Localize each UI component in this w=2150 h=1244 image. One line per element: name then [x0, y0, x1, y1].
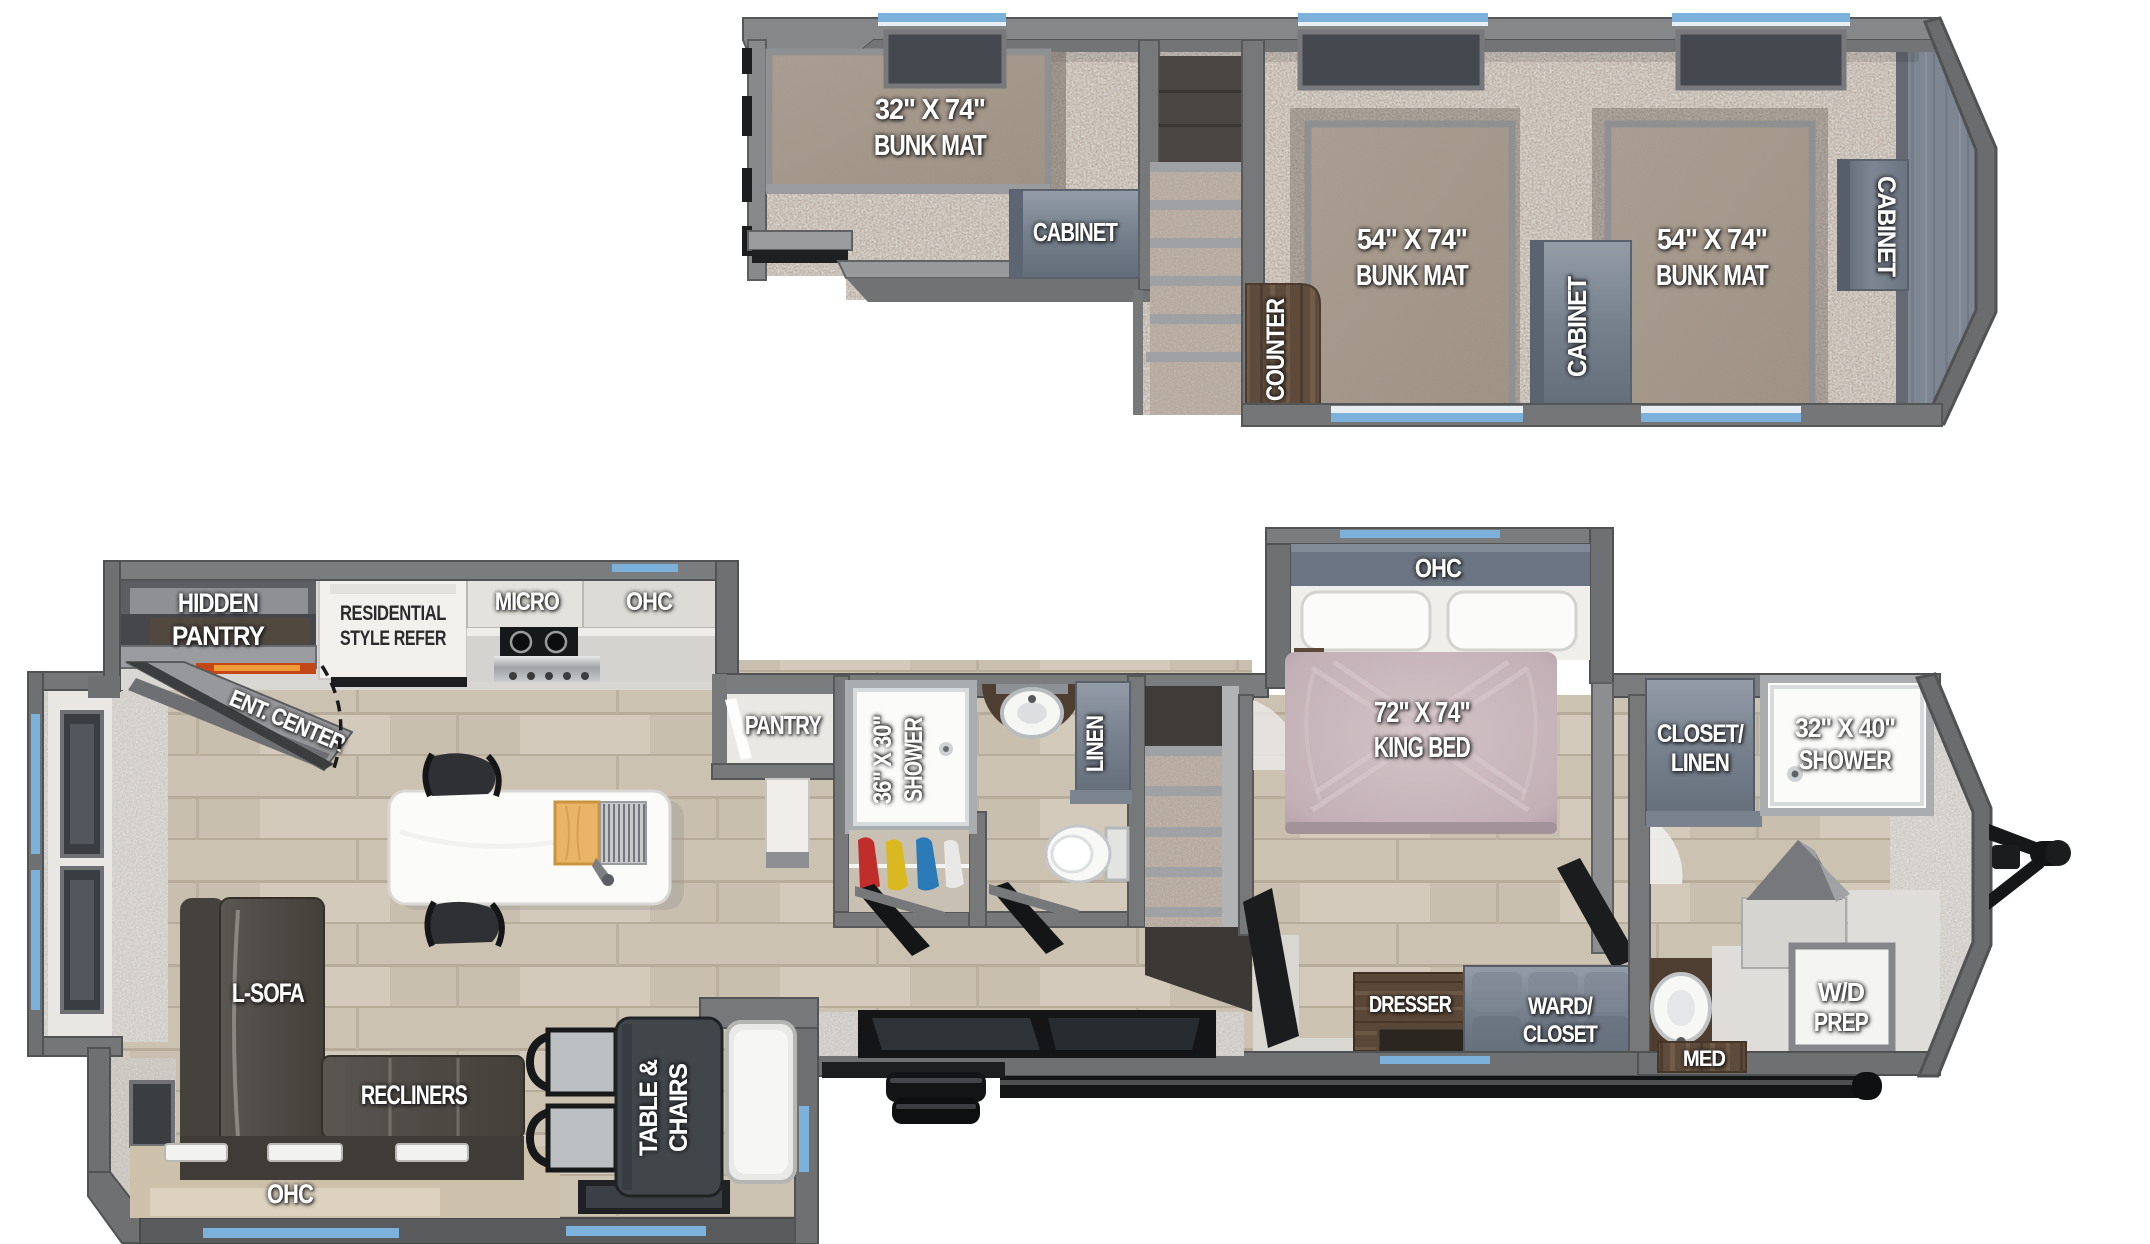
svg-text:HIDDEN: HIDDEN: [178, 588, 258, 618]
svg-text:36" X 30": 36" X 30": [869, 716, 897, 804]
svg-text:CHAIRS: CHAIRS: [665, 1064, 693, 1152]
svg-text:CABINET: CABINET: [1562, 276, 1592, 377]
svg-text:W/D: W/D: [1818, 977, 1864, 1007]
svg-text:CLOSET: CLOSET: [1523, 1021, 1598, 1048]
svg-text:OHC: OHC: [267, 1179, 313, 1209]
svg-text:BUNK MAT: BUNK MAT: [1656, 260, 1769, 292]
svg-text:CLOSET/: CLOSET/: [1657, 720, 1744, 748]
svg-text:OHC: OHC: [626, 588, 673, 616]
svg-text:CABINET: CABINET: [1872, 176, 1900, 277]
svg-text:TABLE &: TABLE &: [635, 1059, 663, 1156]
svg-text:BUNK MAT: BUNK MAT: [874, 130, 987, 162]
svg-text:54" X 74": 54" X 74": [1357, 224, 1467, 256]
svg-text:DRESSER: DRESSER: [1369, 991, 1452, 1017]
svg-text:COUNTER: COUNTER: [1262, 298, 1290, 401]
svg-text:KING BED: KING BED: [1374, 732, 1470, 764]
svg-text:BUNK MAT: BUNK MAT: [1356, 260, 1469, 292]
svg-text:MICRO: MICRO: [495, 588, 559, 616]
svg-text:RESIDENTIAL: RESIDENTIAL: [340, 602, 447, 625]
svg-text:PREP: PREP: [1814, 1007, 1869, 1037]
svg-text:LINEN: LINEN: [1671, 749, 1729, 777]
svg-text:54" X 74": 54" X 74": [1657, 224, 1767, 256]
svg-text:RECLINERS: RECLINERS: [361, 1080, 467, 1110]
svg-text:PANTRY: PANTRY: [745, 710, 822, 740]
svg-text:WARD/: WARD/: [1528, 993, 1593, 1020]
svg-text:PANTRY: PANTRY: [172, 621, 265, 651]
svg-text:SHOWER: SHOWER: [1799, 745, 1891, 775]
svg-text:CABINET: CABINET: [1033, 217, 1118, 247]
svg-text:MED: MED: [1683, 1046, 1725, 1071]
svg-text:OHC: OHC: [1415, 553, 1462, 583]
svg-text:32" X 74": 32" X 74": [875, 94, 985, 126]
svg-text:LINEN: LINEN: [1082, 716, 1109, 772]
svg-text:L-SOFA: L-SOFA: [232, 978, 304, 1008]
svg-text:32" X 40": 32" X 40": [1795, 713, 1895, 743]
svg-text:72" X 74": 72" X 74": [1374, 697, 1470, 729]
svg-text:STYLE REFER: STYLE REFER: [340, 627, 446, 650]
svg-text:SHOWER: SHOWER: [900, 717, 928, 802]
